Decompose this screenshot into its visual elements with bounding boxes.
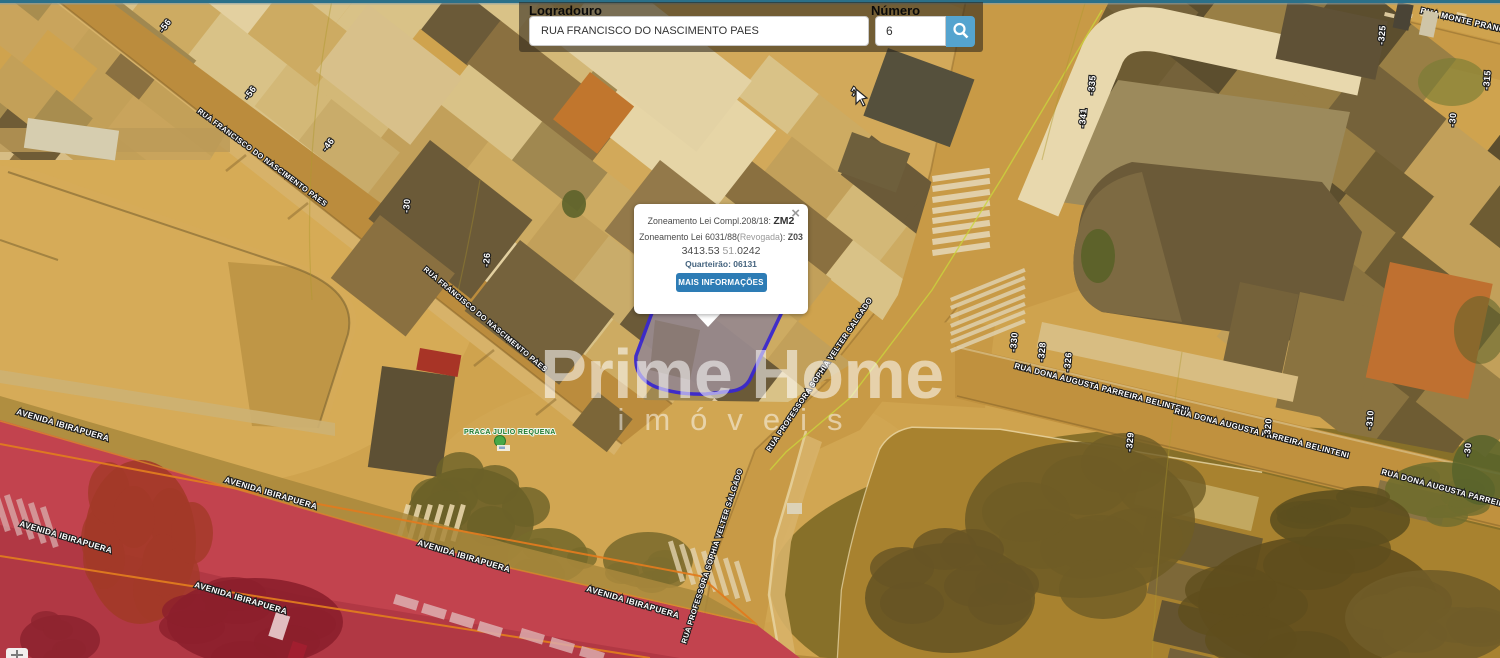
svg-text:-30: -30 bbox=[1462, 442, 1473, 457]
svg-text:-320: -320 bbox=[1262, 418, 1274, 438]
svg-text:-330: -330 bbox=[1008, 332, 1020, 352]
svg-text:-30: -30 bbox=[1447, 112, 1458, 127]
svg-text:-310: -310 bbox=[1364, 410, 1376, 430]
svg-text:-341: -341 bbox=[1077, 108, 1089, 128]
svg-text:-328: -328 bbox=[1036, 342, 1048, 362]
svg-text:-329: -329 bbox=[1124, 432, 1136, 452]
svg-text:-30: -30 bbox=[401, 198, 412, 213]
svg-text:-315: -315 bbox=[1481, 70, 1493, 90]
svg-text:-325: -325 bbox=[1376, 25, 1388, 45]
svg-text:-335: -335 bbox=[1086, 75, 1098, 95]
svg-text:-26: -26 bbox=[481, 252, 492, 267]
svg-text:-326: -326 bbox=[1062, 352, 1074, 372]
svg-text:PRACA JULIO REQUENA: PRACA JULIO REQUENA bbox=[464, 429, 556, 436]
